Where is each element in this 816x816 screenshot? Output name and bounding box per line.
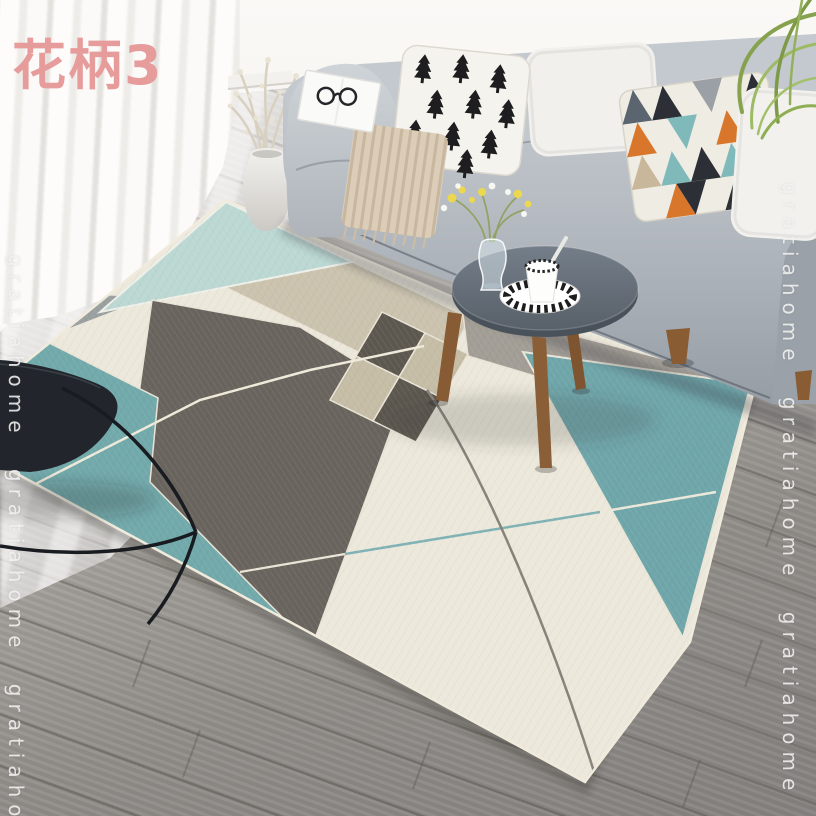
table-shadow bbox=[385, 394, 655, 446]
throw-blanket bbox=[339, 122, 449, 252]
watermark-right: gratiahome gratiahome gratiahome bbox=[778, 182, 802, 816]
product-photo-living-room: gratiahome gratiahome gratiahome gratiah… bbox=[0, 0, 816, 816]
scene-graphics bbox=[0, 0, 816, 816]
variant-label: 花柄3 bbox=[12, 36, 164, 95]
watermark-left: gratiahome gratiahome gratiahome bbox=[4, 254, 28, 816]
